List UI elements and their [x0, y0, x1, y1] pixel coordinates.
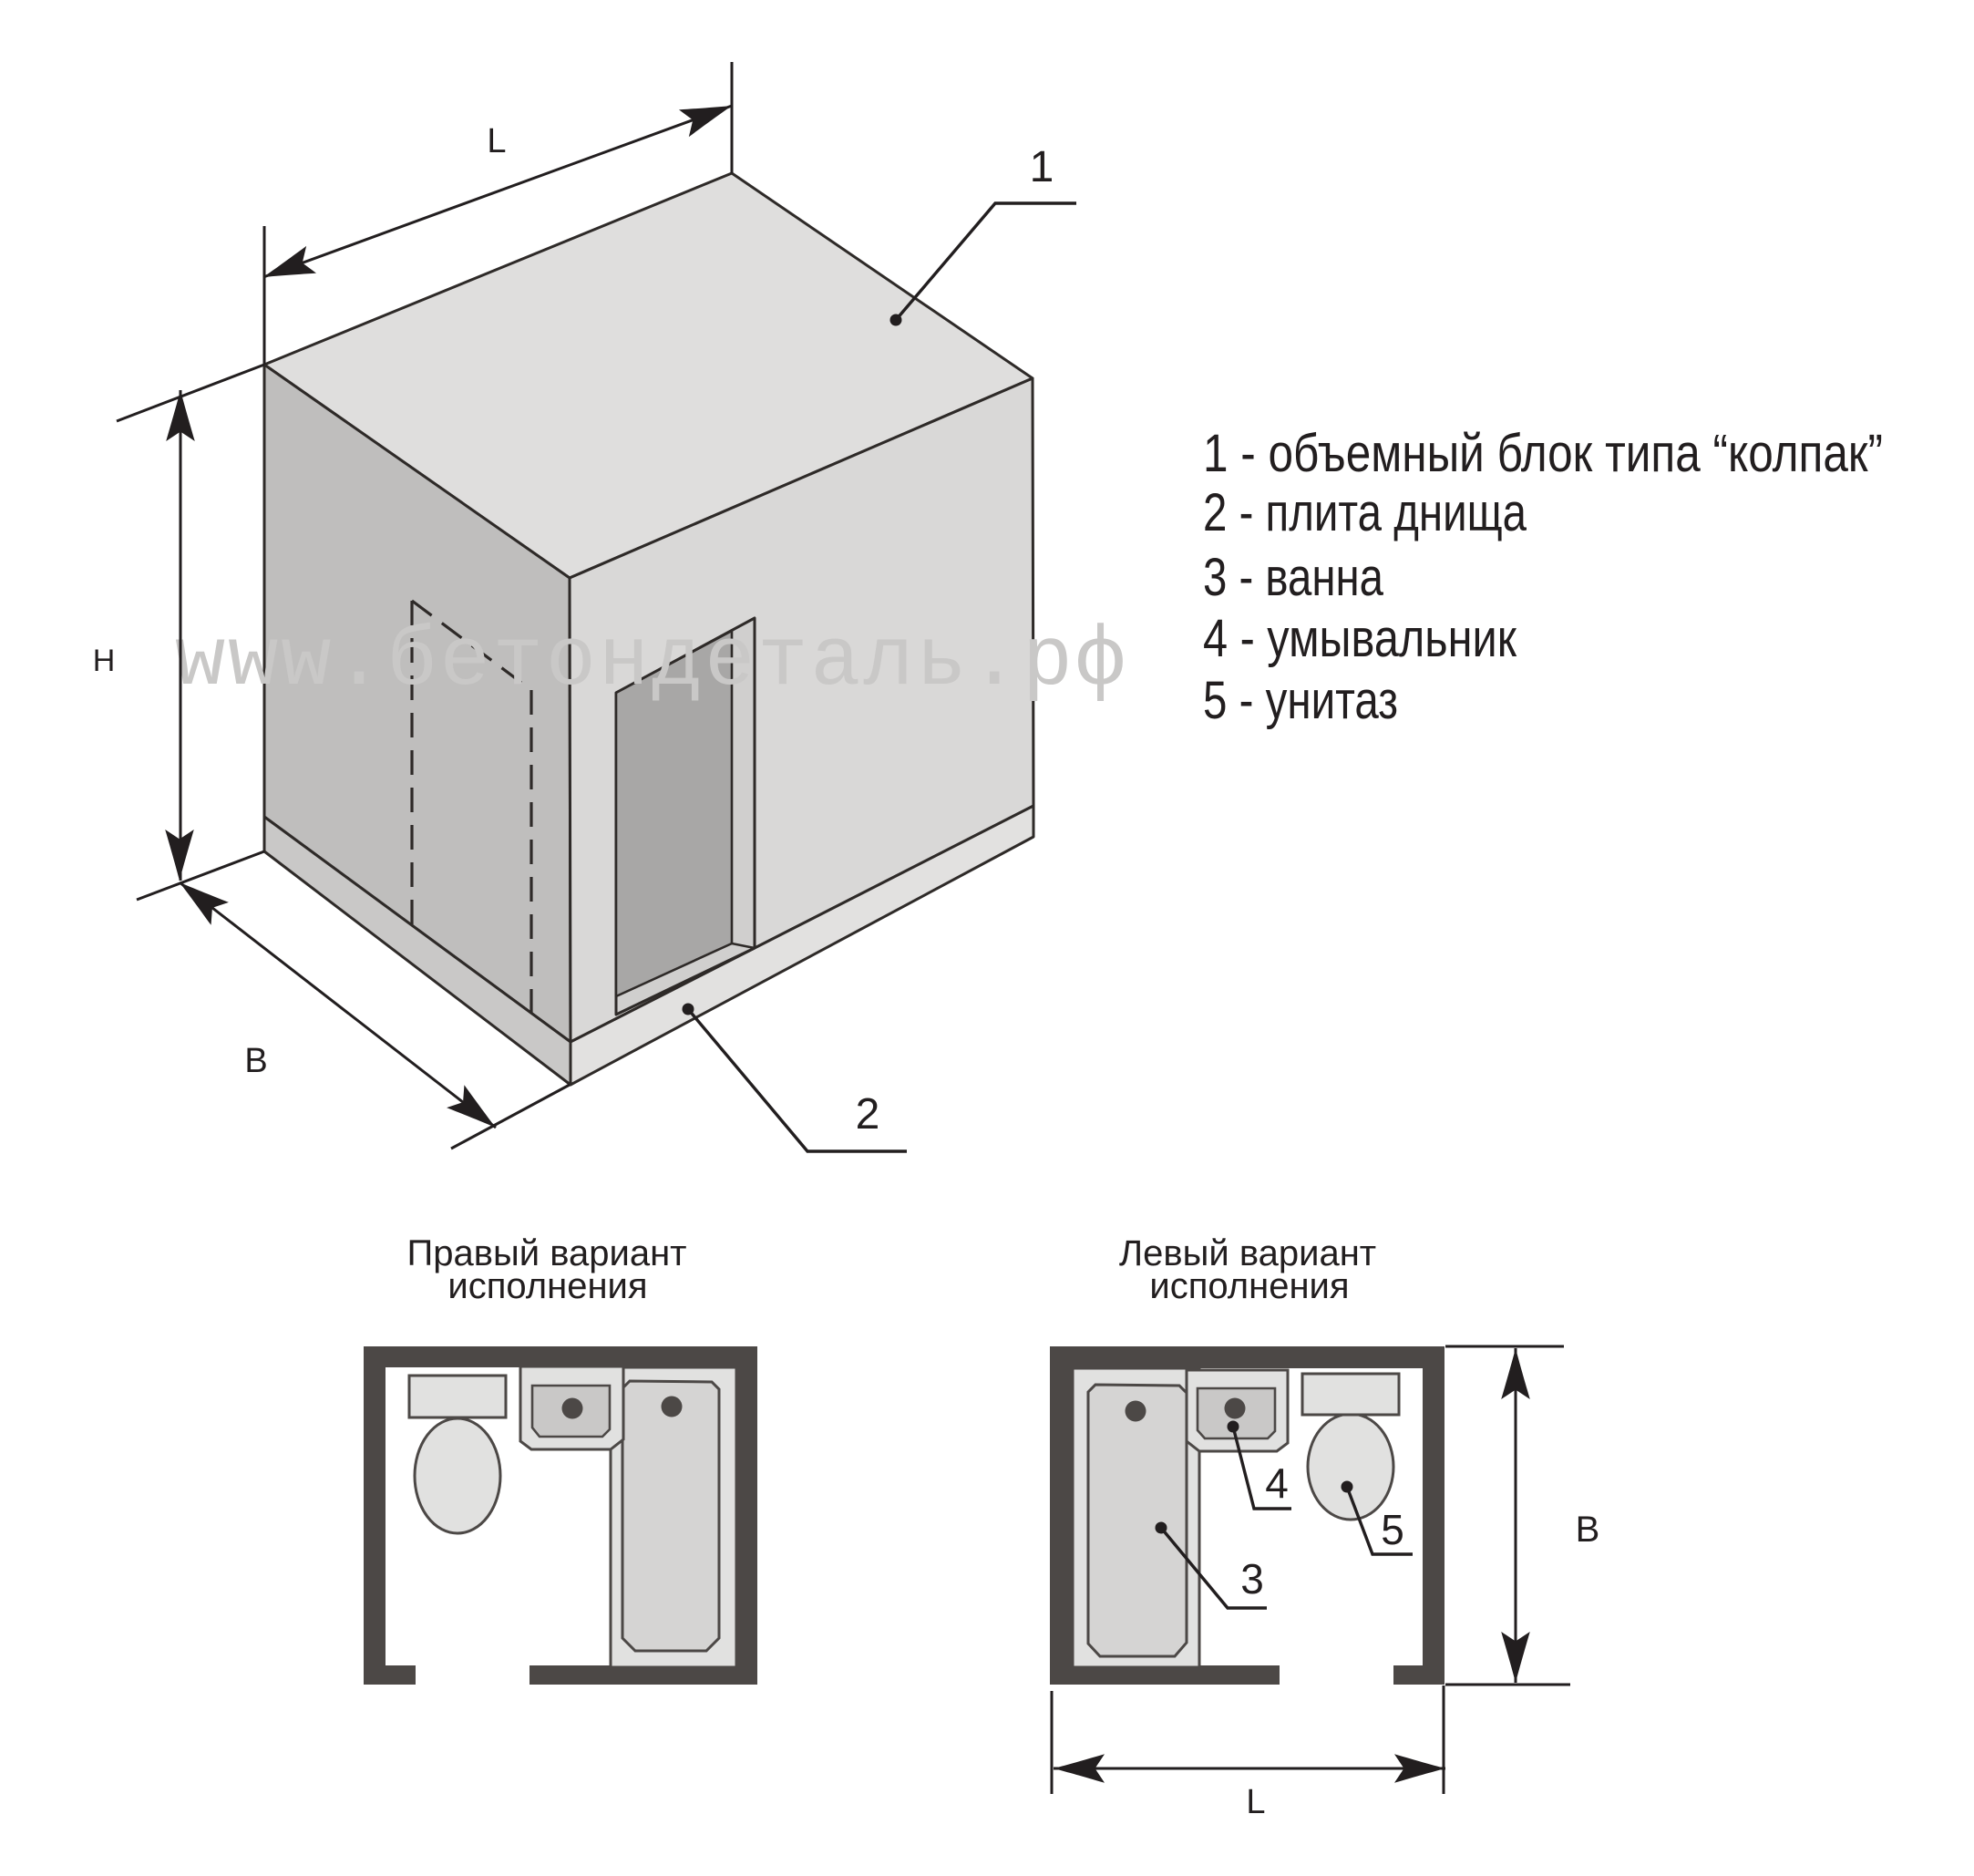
svg-text:2: 2 [856, 1090, 880, 1139]
svg-text:исполнения: исполнения [1149, 1266, 1349, 1306]
svg-text:1: 1 [1030, 143, 1054, 191]
svg-text:H: H [93, 644, 116, 678]
svg-text:B: B [244, 1042, 267, 1080]
svg-text:1 - объемный блок типа “колпак: 1 - объемный блок типа “колпак” [1203, 424, 1883, 483]
svg-text:5 - унитаз: 5 - унитаз [1203, 671, 1398, 730]
svg-text:3 - ванна: 3 - ванна [1203, 548, 1384, 607]
svg-text:5: 5 [1381, 1506, 1404, 1553]
svg-text:исполнения: исполнения [447, 1266, 647, 1306]
svg-text:2 - плита днища: 2 - плита днища [1203, 483, 1527, 542]
svg-text:L: L [1246, 1783, 1265, 1821]
svg-text:4 - умывальник: 4 - умывальник [1203, 609, 1517, 668]
svg-text:3: 3 [1240, 1555, 1264, 1603]
svg-text:www.бетондеталь.рф: www.бетондеталь.рф [175, 613, 1128, 709]
svg-text:В: В [1576, 1510, 1600, 1550]
svg-text:4: 4 [1265, 1459, 1289, 1507]
svg-text:L: L [487, 122, 506, 160]
